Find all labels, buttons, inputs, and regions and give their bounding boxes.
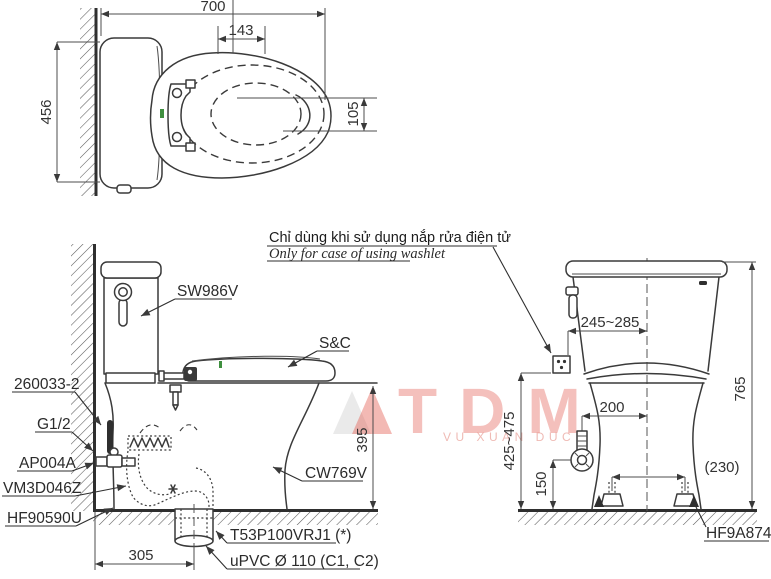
dim-700: 700 — [200, 0, 225, 15]
side-view: 395 305 SW986V S&C CW769V 260033-2 G1/2 … — [2, 244, 379, 570]
floor-line — [93, 509, 378, 512]
drain-elbow — [196, 468, 213, 506]
dim-305: 305 — [128, 547, 153, 564]
bolt-cap-left — [601, 494, 623, 506]
wall-hatching — [80, 8, 96, 196]
dim-200: 200 — [599, 399, 624, 416]
washlet-hose-tip — [173, 405, 178, 410]
washlet-hinge-detail — [188, 370, 192, 374]
stop-valve-body — [107, 455, 122, 467]
trap-hidden-arc — [140, 425, 161, 433]
label-drain-pipe: uPVC Ø 110 (C1, C2) — [230, 553, 379, 570]
hinge-tab-top — [186, 80, 195, 88]
dim-456: 456 — [38, 99, 55, 124]
dim-765: 765 — [732, 376, 749, 401]
note-vietnamese: Chỉ dùng khi sử dụng nắp rửa điện tử — [269, 229, 511, 246]
hinge-tab-bottom — [186, 143, 195, 151]
seat-mount-arm — [163, 373, 184, 379]
label-stop-valve: AP004A — [19, 455, 77, 472]
seat-cover-side — [183, 358, 335, 381]
washlet-hose-elbow — [170, 385, 181, 392]
washlet-hose — [173, 392, 178, 405]
washlet-note: Chỉ dùng khi sử dụng nắp rửa điện tử Onl… — [267, 229, 511, 262]
dim-143: 143 — [228, 22, 253, 39]
tank-side-right — [708, 277, 719, 371]
stop-valve-outlet — [122, 458, 135, 466]
trap-hidden-arc — [180, 425, 197, 431]
label-inlet-hose: 260033-2 — [14, 376, 80, 393]
eco-mark — [219, 361, 222, 368]
flush-lever-handle — [119, 299, 127, 326]
top-view: 700 143 456 105 — [38, 0, 377, 196]
bowl-side-right — [693, 383, 703, 509]
floor-hatching — [518, 512, 757, 525]
flush-lever-front-hub — [566, 287, 578, 295]
technical-drawing-svg: TDM VU XUAN DUC 700 143 456 — [0, 0, 771, 579]
flush-lever-front-handle — [569, 295, 577, 318]
trapway-inner — [138, 454, 169, 495]
label-flange: VM3D046Z — [3, 480, 81, 497]
label-tank: SW986V — [177, 283, 239, 300]
floor-hatching — [93, 512, 174, 525]
toilet-installation-drawing: TDM VU XUAN DUC 700 143 456 — [0, 0, 771, 579]
brand-logo-mark — [699, 281, 707, 285]
dim-395: 395 — [354, 427, 371, 452]
label-floor-seal: HF90590U — [7, 510, 82, 527]
washlet-supply-box — [553, 356, 570, 373]
cistern-base — [106, 373, 155, 383]
note-english: Only for case of using washlet — [269, 246, 446, 262]
wall-line — [93, 244, 96, 512]
floor-line — [518, 509, 757, 512]
tank-lid — [566, 261, 727, 277]
flush-lever-hub — [115, 284, 132, 301]
eco-mark — [160, 109, 164, 118]
dim-105: 105 — [345, 101, 362, 126]
note-leader — [493, 247, 551, 353]
label-bowl: CW769V — [305, 465, 368, 482]
dim-245-285: 245~285 — [581, 314, 640, 331]
dim-425-475: 425~475 — [501, 412, 518, 471]
supply-valve — [571, 449, 593, 471]
dim-230: (230) — [704, 459, 739, 476]
dim-150: 150 — [533, 471, 550, 496]
trap-star-mark — [169, 485, 177, 493]
floor-hatching — [213, 512, 378, 525]
label-drain-socket: T53P100VRJ1 (*) — [230, 527, 351, 544]
cistern-lid — [101, 262, 161, 278]
tank-button — [117, 185, 131, 193]
wall-line — [95, 8, 98, 196]
flange-seal-coil — [130, 438, 169, 447]
label-bolt-cap: HF9A874 — [706, 525, 771, 542]
stop-valve-wall-nut — [96, 457, 107, 466]
seat-mount-bolt — [159, 371, 164, 381]
label-seat: S&C — [319, 335, 351, 352]
hinge-hole-bottom — [173, 133, 182, 142]
label-thread: G1/2 — [37, 416, 71, 433]
bowl-front-profile — [285, 383, 319, 509]
hinge-hole-top — [173, 89, 182, 98]
